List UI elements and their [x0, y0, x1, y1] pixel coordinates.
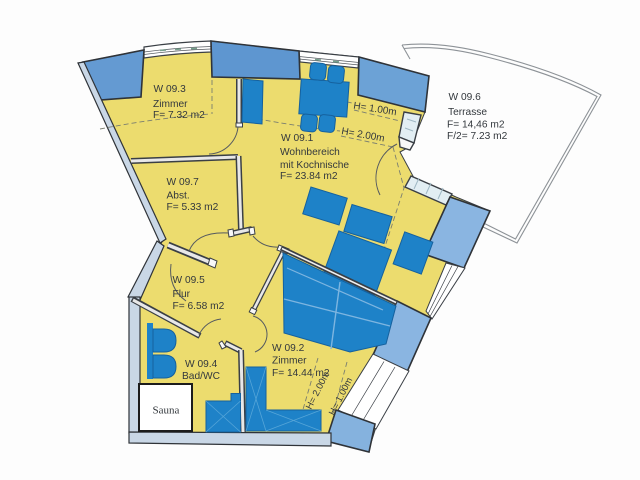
- svg-text:F= 7.32 m2: F= 7.32 m2: [153, 110, 205, 121]
- svg-text:W 09.6: W 09.6: [449, 92, 482, 103]
- svg-text:W 09.2: W 09.2: [272, 343, 305, 354]
- svg-text:Wohnbereich: Wohnbereich: [280, 147, 340, 158]
- svg-text:W 09.3: W 09.3: [154, 84, 187, 95]
- svg-text:W 09.1: W 09.1: [281, 133, 314, 144]
- svg-text:Flur: Flur: [173, 289, 191, 300]
- svg-text:Abst.: Abst.: [167, 191, 190, 202]
- svg-text:mit Kochnische: mit Kochnische: [280, 160, 349, 171]
- svg-text:Zimmer: Zimmer: [272, 356, 307, 367]
- svg-text:Sauna: Sauna: [153, 405, 180, 417]
- svg-text:F= 6.58 m2: F= 6.58 m2: [173, 301, 225, 312]
- svg-text:W 09.4: W 09.4: [185, 359, 218, 370]
- svg-text:W 09.7: W 09.7: [167, 177, 200, 188]
- svg-text:F= 5.33 m2: F= 5.33 m2: [167, 202, 219, 213]
- svg-text:Zimmer: Zimmer: [153, 99, 188, 110]
- svg-text:Terrasse: Terrasse: [448, 107, 487, 118]
- svg-text:F/2= 7.23 m2: F/2= 7.23 m2: [447, 131, 508, 142]
- svg-text:F= 23.84 m2: F= 23.84 m2: [280, 171, 338, 182]
- svg-text:W 09.5: W 09.5: [173, 275, 206, 286]
- svg-text:F= 14,46 m2: F= 14,46 m2: [447, 120, 505, 131]
- svg-text:Bad/WC: Bad/WC: [182, 371, 220, 382]
